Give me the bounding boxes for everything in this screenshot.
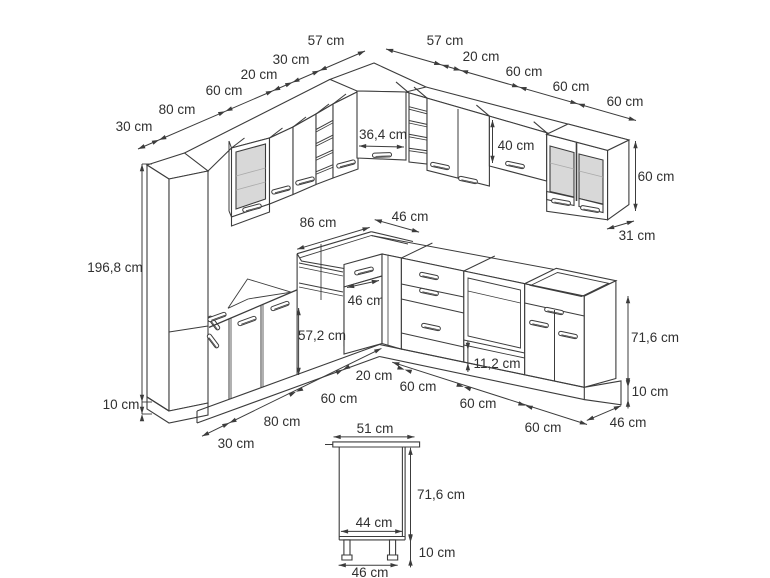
svg-text:60 cm: 60 cm xyxy=(321,391,358,406)
svg-text:60 cm: 60 cm xyxy=(638,169,675,184)
svg-text:46 cm: 46 cm xyxy=(348,293,385,308)
svg-text:80 cm: 80 cm xyxy=(159,102,196,117)
svg-text:86 cm: 86 cm xyxy=(300,215,337,230)
svg-text:20 cm: 20 cm xyxy=(241,67,278,82)
svg-text:60 cm: 60 cm xyxy=(607,94,644,109)
svg-text:60 cm: 60 cm xyxy=(525,420,562,435)
svg-text:10 cm: 10 cm xyxy=(632,384,669,399)
svg-text:10 cm: 10 cm xyxy=(103,397,140,412)
svg-text:57 cm: 57 cm xyxy=(427,33,464,48)
svg-text:57 cm: 57 cm xyxy=(308,33,345,48)
svg-text:30 cm: 30 cm xyxy=(218,436,255,451)
svg-text:30 cm: 30 cm xyxy=(273,52,310,67)
svg-text:20 cm: 20 cm xyxy=(356,368,393,383)
svg-text:80 cm: 80 cm xyxy=(264,414,301,429)
svg-text:10 cm: 10 cm xyxy=(419,545,456,560)
svg-text:51 cm: 51 cm xyxy=(357,421,394,436)
svg-text:40 cm: 40 cm xyxy=(498,138,535,153)
svg-text:196,8 cm: 196,8 cm xyxy=(87,260,143,275)
svg-text:46 cm: 46 cm xyxy=(352,565,389,578)
svg-text:46 cm: 46 cm xyxy=(392,209,429,224)
svg-text:20 cm: 20 cm xyxy=(463,49,500,64)
svg-text:60 cm: 60 cm xyxy=(460,396,497,411)
svg-text:57,2 cm: 57,2 cm xyxy=(298,328,346,343)
svg-text:44 cm: 44 cm xyxy=(356,515,393,530)
svg-text:60 cm: 60 cm xyxy=(400,379,437,394)
svg-text:71,6 cm: 71,6 cm xyxy=(631,330,679,345)
svg-text:31 cm: 31 cm xyxy=(619,228,656,243)
svg-text:36,4 cm: 36,4 cm xyxy=(359,127,407,142)
svg-text:71,6 cm: 71,6 cm xyxy=(417,487,465,502)
svg-text:60 cm: 60 cm xyxy=(206,83,243,98)
svg-text:60 cm: 60 cm xyxy=(553,79,590,94)
svg-text:60 cm: 60 cm xyxy=(506,64,543,79)
svg-text:30 cm: 30 cm xyxy=(116,119,153,134)
svg-text:46 cm: 46 cm xyxy=(610,415,647,430)
